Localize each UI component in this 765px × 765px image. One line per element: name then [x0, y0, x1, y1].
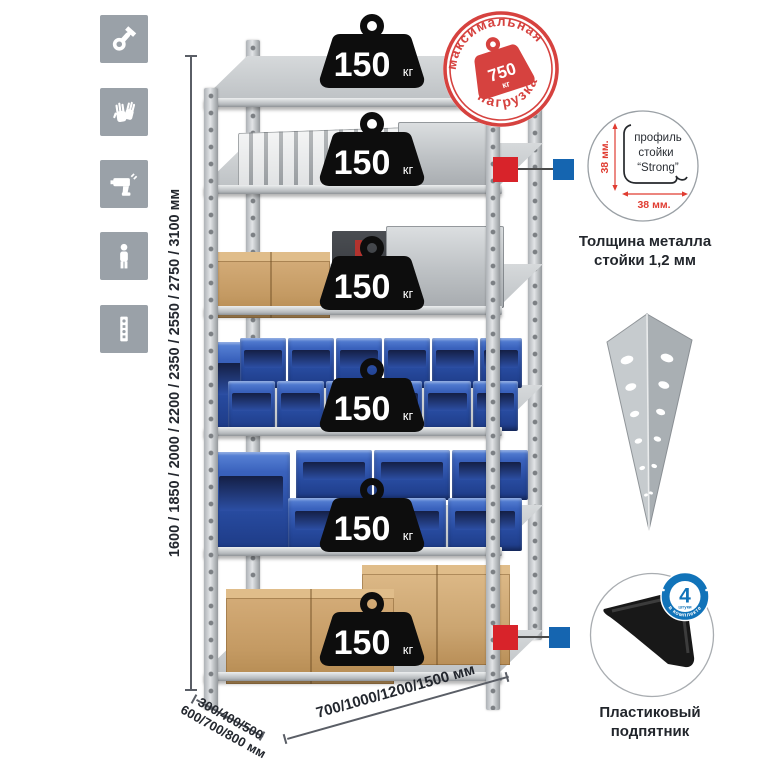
profile-callout-line: [517, 168, 557, 170]
profile-dim-vertical: 38 мм.: [599, 140, 611, 173]
height-dimension-label: 1600 / 1850 / 2000 / 2200 / 2350 / 2550 …: [166, 133, 184, 613]
height-dim-line: [190, 56, 192, 690]
shelf-load-weight-2: 150 кг: [302, 112, 442, 190]
profile-callout-red-marker: [493, 157, 518, 182]
foot-callout-line: [517, 636, 553, 638]
foot-callout-red-marker: [493, 625, 518, 650]
depth-dimension-label: 300/400/500 600/700/800 мм: [161, 679, 293, 765]
blue-bin-large: [448, 498, 522, 551]
plastic-foot-caption-line1: Пластиковый: [570, 703, 730, 722]
profile-caption-line1: Толщина металла: [565, 232, 725, 251]
shelf-load-weight-5: 150 кг: [302, 478, 442, 556]
load-value: 150: [334, 510, 391, 548]
load-value: 150: [334, 46, 391, 84]
rack-post-back-right: [528, 40, 542, 640]
profile-caption: Толщина металла стойки 1,2 мм: [565, 232, 725, 270]
post-profile-detail-circle: 38 мм. 38 мм. профиль стойки “Strong”: [585, 109, 701, 225]
gloves-icon: [100, 88, 148, 136]
load-value: 150: [334, 390, 391, 428]
wrench-icon-glyph: [109, 24, 139, 54]
wrench-icon: [100, 15, 148, 63]
person-icon-glyph: [109, 241, 139, 271]
product-infographic: 1600 / 1850 / 2000 / 2200 / 2350 / 2550 …: [0, 0, 765, 765]
gloves-icon-glyph: [109, 97, 139, 127]
shelf-load-weight-4: 150 кг: [302, 358, 442, 436]
load-unit: кг: [403, 64, 414, 79]
load-value: 150: [334, 624, 391, 662]
badge-sub-label: штуки: [678, 605, 692, 610]
rack-post-front-left: [204, 88, 218, 710]
load-unit: кг: [403, 528, 414, 543]
load-unit: кг: [403, 408, 414, 423]
plastic-foot-caption-line2: подпятник: [570, 722, 730, 741]
load-unit: кг: [403, 642, 414, 657]
person-icon: [100, 232, 148, 280]
load-value: 150: [334, 268, 391, 306]
shelf-load-weight-1: 150 кг: [302, 14, 442, 92]
load-value: 150: [334, 144, 391, 182]
depth-dim-line2: 600/700/800 мм: [161, 693, 285, 765]
profile-caption-line2: стойки 1,2 мм: [565, 251, 725, 270]
profile-label-3: “Strong”: [637, 162, 679, 174]
load-unit: кг: [403, 286, 414, 301]
angle-post-image: [597, 300, 702, 540]
blue-tote: [212, 452, 290, 551]
shelf-load-weight-6: 150 кг: [302, 592, 442, 670]
count-badge: в комплекте 4 штуки: [661, 573, 709, 621]
profile-label-1: профиль: [634, 132, 682, 144]
profile-dim-horizontal: 38 мм.: [637, 199, 670, 211]
drill-icon-glyph: [109, 169, 139, 199]
blue-bin: [228, 381, 275, 431]
drill-icon: [100, 160, 148, 208]
rack-post-icon: [100, 305, 148, 353]
profile-label-2: стойки: [638, 147, 673, 159]
plastic-foot-detail-circle: в комплекте 4 штуки: [588, 571, 718, 701]
shelf-load-weight-3: 150 кг: [302, 236, 442, 314]
foot-callout-blue-marker: [549, 627, 570, 648]
load-unit: кг: [403, 162, 414, 177]
profile-callout-blue-marker: [553, 159, 574, 180]
rack-post-icon-glyph: [109, 314, 139, 344]
plastic-foot-caption: Пластиковый подпятник: [570, 703, 730, 741]
